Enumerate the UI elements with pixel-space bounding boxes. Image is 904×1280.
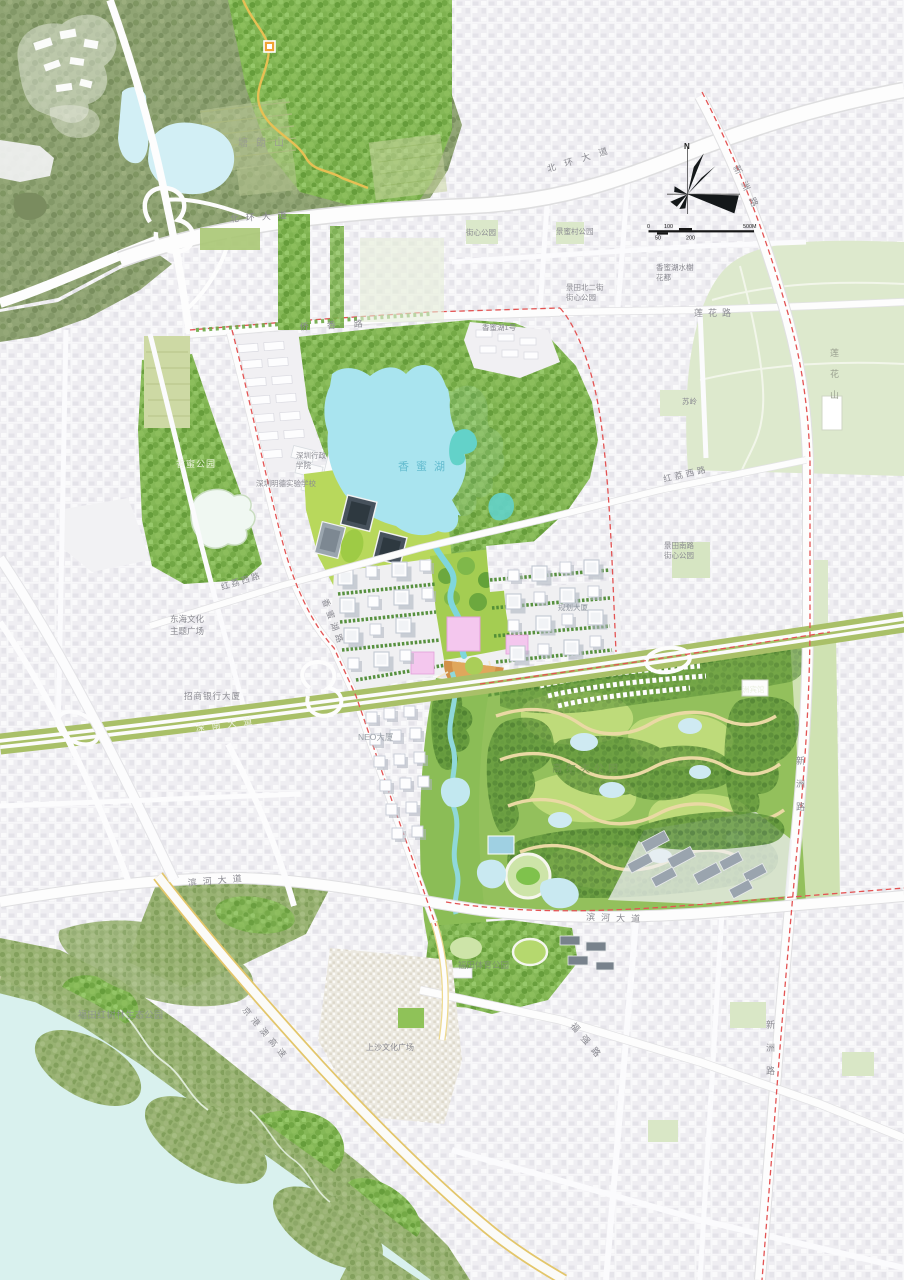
svg-text:滨河大道: 滨河大道 — [586, 911, 646, 924]
svg-text:主题广场: 主题广场 — [170, 626, 204, 636]
svg-text:苏岭: 苏岭 — [682, 396, 697, 406]
svg-text:莲花路: 莲花路 — [694, 307, 736, 318]
svg-text:塘朗山: 塘朗山 — [238, 136, 292, 149]
svg-text:深圳明德实验学校: 深圳明德实验学校 — [256, 478, 316, 488]
svg-text:50: 50 — [655, 236, 661, 242]
svg-text:香蜜湖1号: 香蜜湖1号 — [482, 322, 516, 332]
svg-text:香蜜湖水榭: 香蜜湖水榭 — [656, 262, 694, 272]
svg-text:街心公园: 街心公园 — [566, 292, 596, 302]
svg-text:街心公园: 街心公园 — [664, 550, 694, 560]
svg-text:莲花山: 莲花山 — [829, 347, 839, 411]
svg-text:香蜜湖: 香蜜湖 — [398, 459, 452, 473]
svg-text:香蜜公园: 香蜜公园 — [176, 458, 216, 469]
svg-text:500M: 500M — [743, 224, 757, 230]
svg-text:NEO大厦: NEO大厦 — [358, 732, 394, 742]
svg-text:新洲路: 新洲路 — [765, 1019, 775, 1089]
svg-text:规划大厦: 规划大厦 — [558, 602, 588, 612]
svg-text:花都: 花都 — [656, 272, 671, 282]
svg-text:高尔夫公园: 高尔夫公园 — [552, 762, 622, 775]
svg-text:200: 200 — [686, 236, 695, 242]
svg-text:100: 100 — [664, 224, 673, 230]
svg-text:景田北二街: 景田北二街 — [566, 282, 604, 292]
svg-text:上沙文化广场: 上沙文化广场 — [366, 1042, 414, 1052]
svg-text:N: N — [684, 142, 690, 151]
svg-text:景蜜村公园: 景蜜村公园 — [556, 226, 594, 236]
svg-text:福田体育公园: 福田体育公园 — [458, 960, 509, 970]
svg-text:街心公园: 街心公园 — [466, 227, 496, 237]
svg-text:新洲路: 新洲路 — [795, 755, 805, 825]
svg-text:福田红树林生态公园: 福田红树林生态公园 — [78, 1009, 164, 1020]
svg-text:学院: 学院 — [296, 460, 311, 470]
svg-text:招商银行大厦: 招商银行大厦 — [184, 691, 241, 701]
svg-text:洲宾馆: 洲宾馆 — [742, 684, 765, 694]
svg-text:景田南路: 景田南路 — [664, 540, 694, 550]
svg-text:0: 0 — [647, 224, 650, 230]
svg-text:东海文化: 东海文化 — [170, 614, 205, 624]
svg-text:深圳行政: 深圳行政 — [296, 450, 326, 460]
